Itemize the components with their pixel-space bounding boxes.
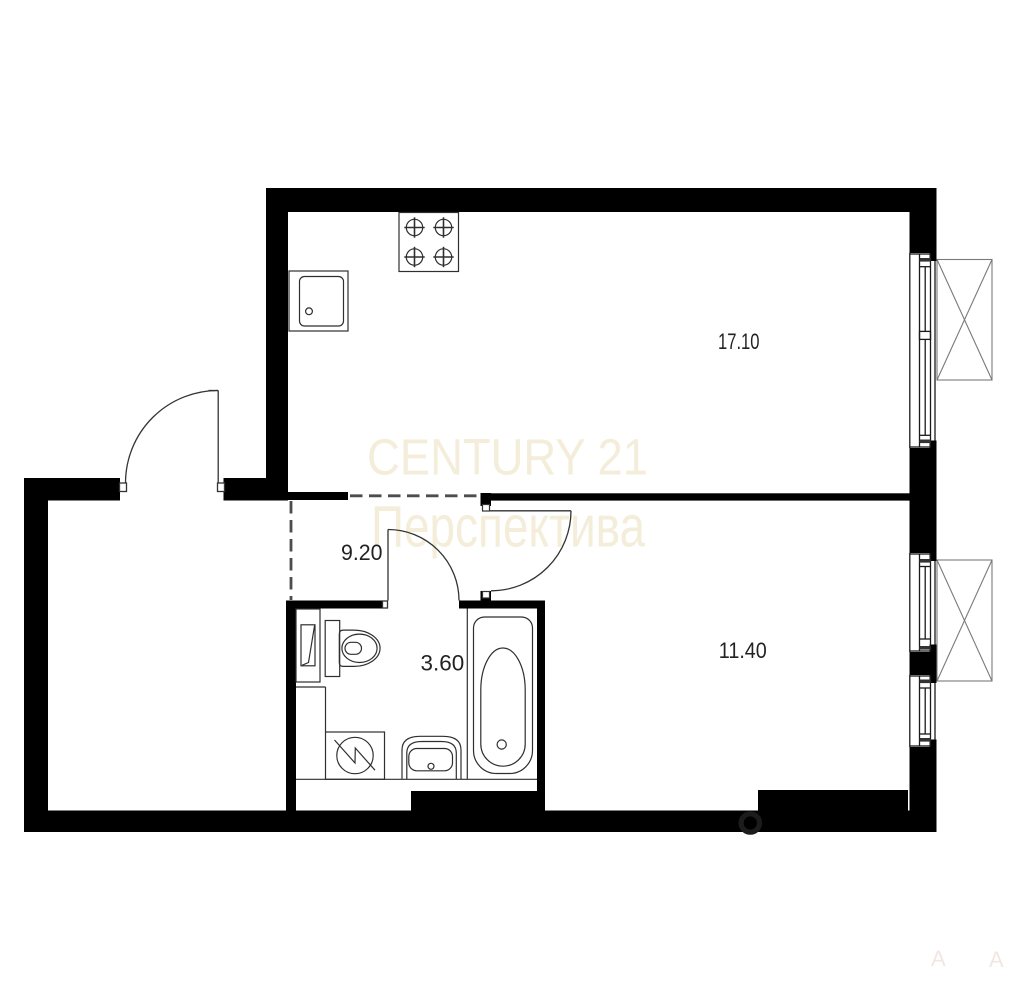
svg-text:9.20: 9.20 xyxy=(341,540,383,565)
svg-text:Перспектива: Перспектива xyxy=(371,495,646,560)
svg-text:А: А xyxy=(989,947,1004,972)
svg-text:3.60: 3.60 xyxy=(421,651,465,676)
svg-text:А: А xyxy=(931,946,946,971)
svg-text:17.10: 17.10 xyxy=(718,329,760,354)
svg-text:CENTURY 21: CENTURY 21 xyxy=(367,429,648,486)
svg-text:11.40: 11.40 xyxy=(719,638,767,663)
